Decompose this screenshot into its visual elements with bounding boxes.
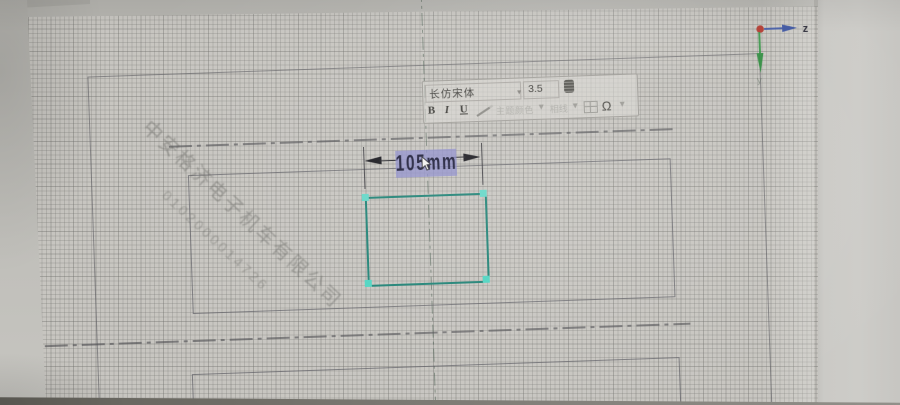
svg-text:y: y (757, 75, 762, 86)
svg-text:z: z (802, 23, 808, 35)
